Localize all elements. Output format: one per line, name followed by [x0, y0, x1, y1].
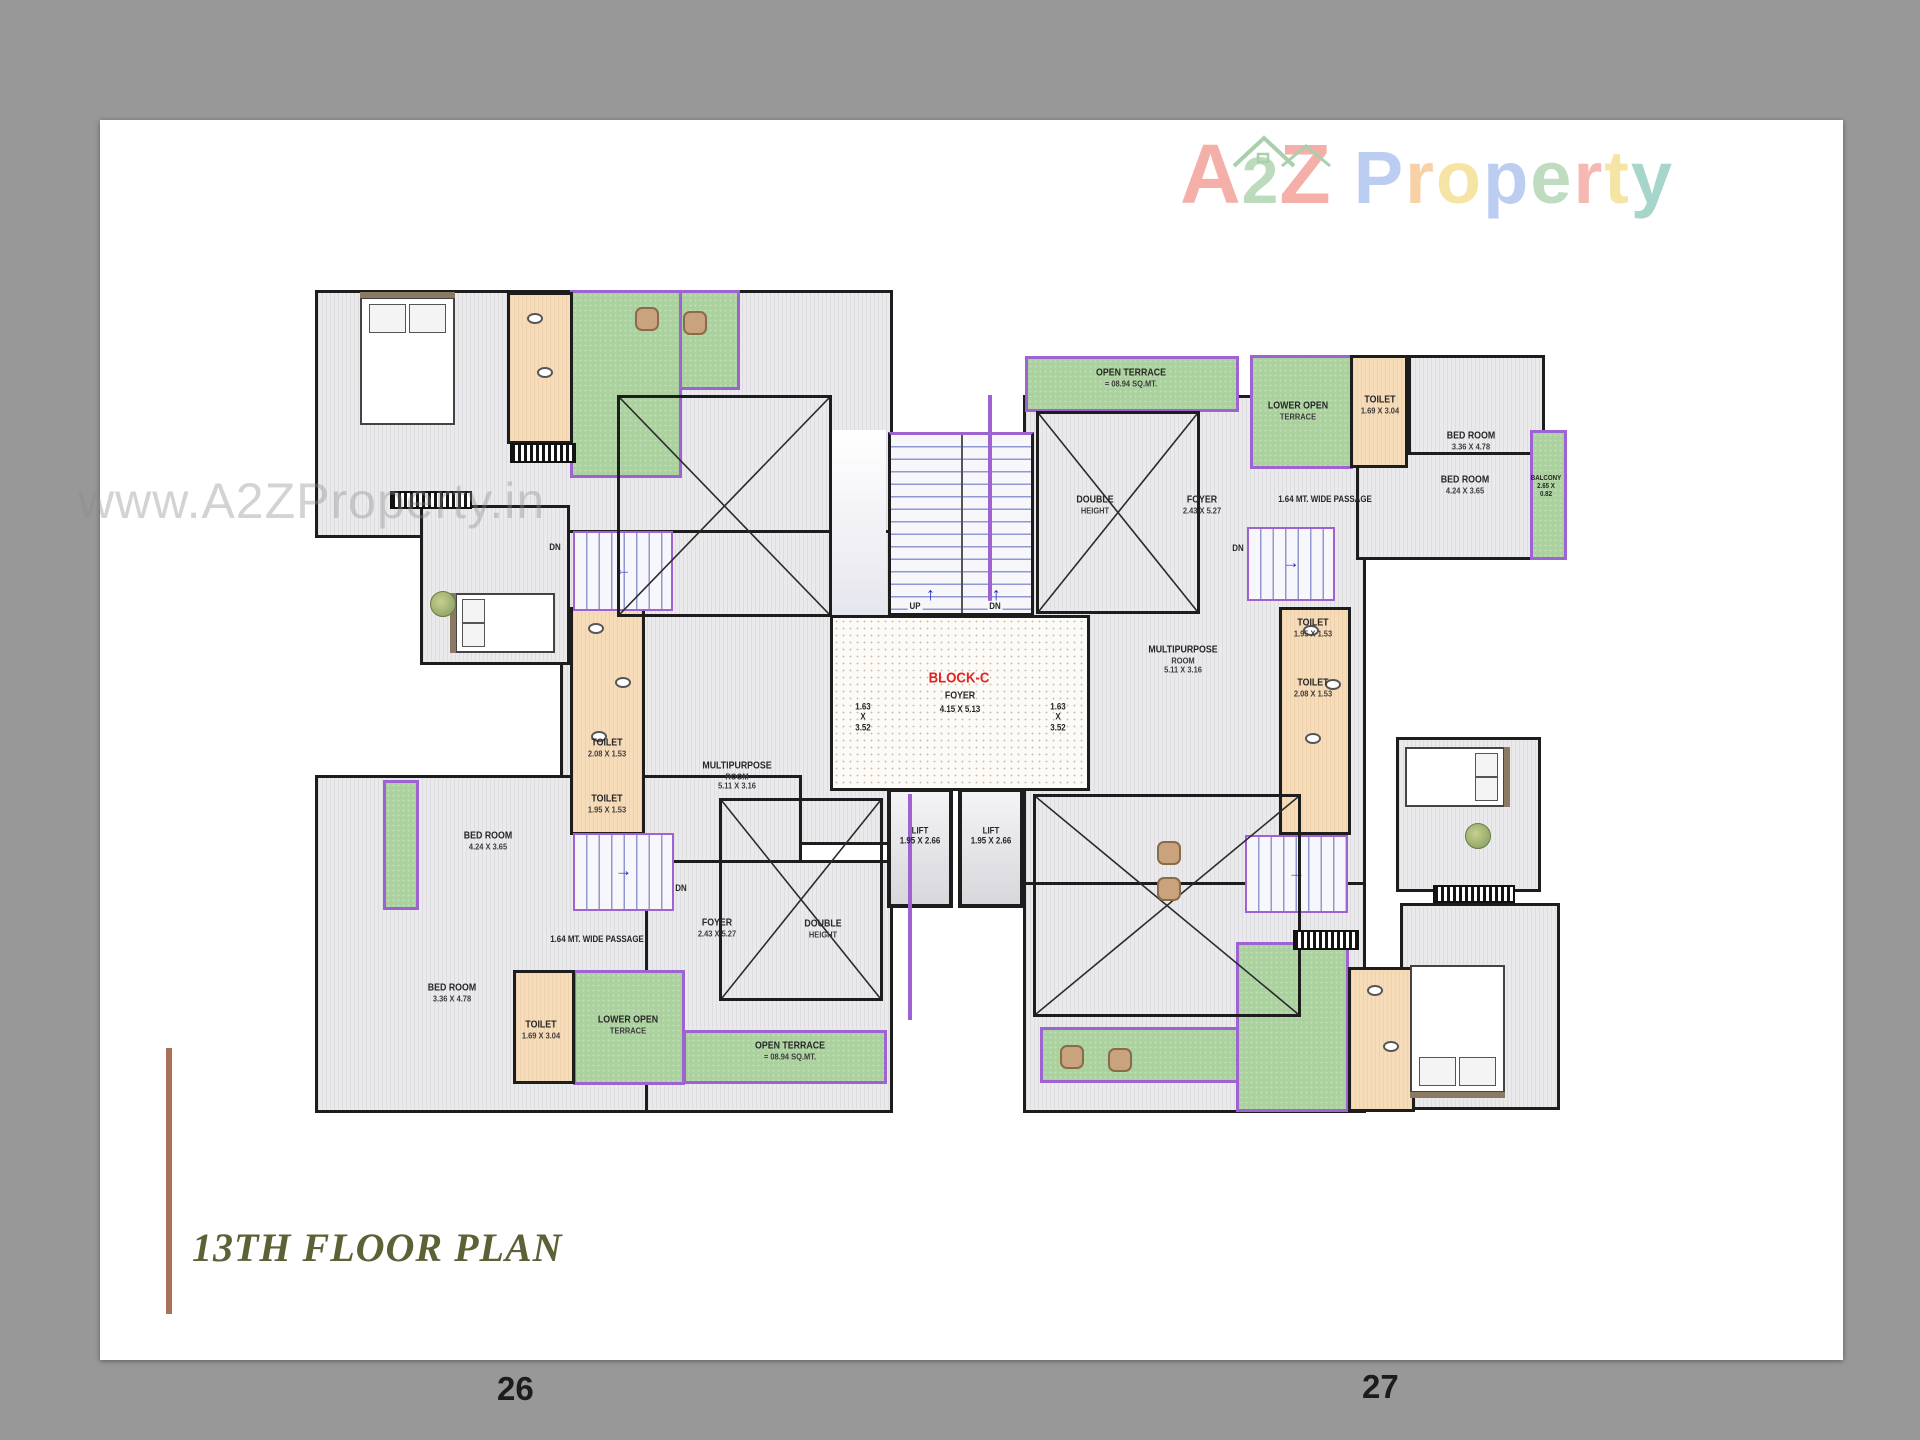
- up-label: UP: [908, 601, 923, 611]
- dim-163-east-label: 1.63X3.52: [1050, 701, 1065, 732]
- lift-1: [887, 788, 953, 908]
- logo-letter: p: [1483, 135, 1530, 220]
- lift-2-label: LIFT1.95 X 2.66: [971, 826, 1012, 847]
- bed-headboard: [360, 292, 455, 298]
- multipurpose-b-label: MULTIPURPOSEROOM5.11 X 3.16: [1148, 644, 1217, 675]
- foyer-c-label-line: 2.43 X 5.27: [698, 929, 736, 939]
- double-height-c-label: DOUBLEHEIGHT: [804, 918, 841, 939]
- dn-core-label-line: DN: [989, 601, 1000, 611]
- wc-east-3: [1305, 733, 1321, 744]
- wc-a-1: [527, 313, 543, 324]
- lift-1-label: LIFT1.95 X 2.66: [900, 826, 941, 847]
- dim-163-east-label-line: 1.63: [1050, 701, 1065, 711]
- bed-pillow: [1419, 1057, 1456, 1086]
- chair-terrace-d-1: [1060, 1045, 1084, 1069]
- bedroom-336-c-label-line: 3.36 X 4.78: [428, 994, 476, 1004]
- bed-unit-d-mid: [1405, 747, 1505, 807]
- dim-163-west-label-line: X: [855, 712, 870, 722]
- logo-letter: r: [1573, 135, 1604, 220]
- dn-c-label: DN: [675, 883, 686, 893]
- passage-c-label-line: 1.64 MT. WIDE PASSAGE: [550, 934, 644, 944]
- a2z-property-logo: A2Z Property: [1180, 126, 1674, 223]
- passage-b-label-line: 1.64 MT. WIDE PASSAGE: [1278, 494, 1372, 504]
- foyer-b-label-line: FOYER: [1183, 494, 1221, 506]
- logo-letter: y: [1631, 135, 1674, 220]
- bed-headboard: [1504, 747, 1510, 807]
- toilet-208-c-label: TOILET2.08 X 1.53: [588, 737, 626, 758]
- bedroom-336-c-label-line: BED ROOM: [428, 982, 476, 994]
- block-c-label: BLOCK-C: [929, 669, 990, 686]
- stairs-b: →: [1247, 527, 1335, 601]
- logo-house-icon: [1230, 126, 1350, 170]
- bedroom-424-b-label-line: 4.24 X 3.65: [1441, 486, 1489, 496]
- multipurpose-b-label-line: 5.11 X 3.16: [1148, 666, 1217, 676]
- stair-direction-arrow: →: [1283, 553, 1300, 573]
- wardrobe-d2: [1433, 885, 1515, 903]
- floor-plan: ↑↑←→→→OPEN TERRACE= 08.94 SQ.MT.LOWER OP…: [305, 285, 1567, 1117]
- up-label-line: UP: [909, 601, 920, 611]
- bedroom-336-b-label-line: BED ROOM: [1447, 430, 1495, 442]
- wc-d-2: [1383, 1041, 1399, 1052]
- toilet-208-c-label-line: 2.08 X 1.53: [588, 749, 626, 759]
- lower-open-terrace-c-label: LOWER OPENTERRACE: [598, 1014, 658, 1035]
- logo-letter: r: [1405, 135, 1436, 220]
- multipurpose-c-label-line: MULTIPURPOSE: [702, 760, 771, 772]
- double-height-b-label-line: HEIGHT: [1076, 506, 1113, 516]
- bed-pillow: [462, 599, 485, 622]
- toilet-169-c-label-line: TOILET: [522, 1019, 560, 1031]
- purple-wall-1: [988, 395, 992, 601]
- lower-open-terrace-b-label: LOWER OPENTERRACE: [1268, 400, 1328, 421]
- dn-a-label: DN: [549, 542, 560, 552]
- chair-terrace-a-2: [683, 311, 707, 335]
- multipurpose-c-label-line: 5.11 X 3.16: [702, 782, 771, 792]
- chair-terrace-d-2: [1108, 1048, 1132, 1072]
- wc-west-2: [615, 677, 631, 688]
- double-height-c-label-line: HEIGHT: [804, 930, 841, 940]
- chair-hall-d-2: [1157, 877, 1181, 901]
- toilet-208-b-label: TOILET2.08 X 1.53: [1294, 677, 1332, 698]
- bed-pillow: [1475, 753, 1498, 776]
- toilet-208-b-label-line: TOILET: [1294, 677, 1332, 689]
- dn-c-label-line: DN: [675, 883, 686, 893]
- toilet-169-b-label-line: 1.69 X 3.04: [1361, 406, 1399, 416]
- block-c-foyer-label: FOYER: [945, 690, 975, 702]
- toilet-195-c-label: TOILET1.95 X 1.53: [588, 793, 626, 814]
- logo-letter: e: [1530, 135, 1573, 220]
- stair-divider: [961, 435, 963, 613]
- chair-terrace-a-1: [635, 307, 659, 331]
- chair-hall-d-1: [1157, 841, 1181, 865]
- logo-letter: t: [1604, 135, 1631, 220]
- bed-pillow: [462, 623, 485, 646]
- plant-a: [430, 591, 456, 617]
- dim-163-east-label-line: X: [1050, 712, 1065, 722]
- multipurpose-c-label: MULTIPURPOSEROOM5.11 X 3.16: [702, 760, 771, 791]
- toilet-169-b-label: TOILET1.69 X 3.04: [1361, 394, 1399, 415]
- stair-up-arrow: ↑: [926, 584, 935, 605]
- open-terrace-b-label: OPEN TERRACE= 08.94 SQ.MT.: [1096, 367, 1166, 388]
- bedroom-424-c-label-line: BED ROOM: [464, 830, 512, 842]
- stairs-c: →: [573, 833, 674, 911]
- toilet-195-b-label: TOILET1.95 X 1.53: [1294, 617, 1332, 638]
- bed-unit-a: [360, 297, 455, 425]
- toilet-169-b-label-line: TOILET: [1361, 394, 1399, 406]
- wardrobe-d1: [1293, 930, 1359, 950]
- lift-2-label-line: LIFT: [971, 826, 1012, 836]
- foyer-c-label: FOYER2.43 X 5.27: [698, 917, 736, 938]
- double-height-b-label: DOUBLEHEIGHT: [1076, 494, 1113, 515]
- double-height-d: [1033, 794, 1301, 1017]
- stair-landing: [832, 430, 886, 614]
- block-c-dim-label: 4.15 X 5.13: [940, 704, 981, 714]
- bed-unit-d: [1410, 965, 1505, 1093]
- dn-b-label: DN: [1232, 543, 1243, 553]
- bedroom-336-b-label: BED ROOM3.36 X 4.78: [1447, 430, 1495, 451]
- toilet-169-c-label: TOILET1.69 X 3.04: [522, 1019, 560, 1040]
- dn-a-label-line: DN: [549, 542, 560, 552]
- bed-pillow: [1459, 1057, 1496, 1086]
- dn-b-label-line: DN: [1232, 543, 1243, 553]
- open-terrace-c-label-line: = 08.94 SQ.MT.: [755, 1052, 825, 1062]
- page-title: 13TH FLOOR PLAN: [192, 1224, 563, 1271]
- bedroom-424-c-label-line: 4.24 X 3.65: [464, 842, 512, 852]
- bedroom-424-c-label: BED ROOM4.24 X 3.65: [464, 830, 512, 851]
- central-staircase: ↑↑: [888, 432, 1034, 616]
- bed-pillow: [1475, 777, 1498, 800]
- passage-b-label: 1.64 MT. WIDE PASSAGE: [1278, 494, 1372, 504]
- bed-unit-a-mid: [455, 593, 555, 653]
- bedroom-336-b-label-line: 3.36 X 4.78: [1447, 442, 1495, 452]
- foyer-b-label-line: 2.43 X 5.27: [1183, 506, 1221, 516]
- dn-core-label: DN: [988, 601, 1003, 611]
- bed-pillow: [409, 304, 446, 333]
- open-terrace-b-label-line: OPEN TERRACE: [1096, 367, 1166, 379]
- dim-163-west-label-line: 1.63: [855, 701, 870, 711]
- block-c-foyer-label-line: FOYER: [945, 690, 975, 702]
- title-accent-line: [166, 1048, 172, 1314]
- balcony-c: [383, 780, 419, 910]
- toilet-169-c-label-line: 1.69 X 3.04: [522, 1031, 560, 1041]
- double-height-c-label-line: DOUBLE: [804, 918, 841, 930]
- toilet-208-b-label-line: 2.08 X 1.53: [1294, 689, 1332, 699]
- lift-1-label-line: LIFT: [900, 826, 941, 836]
- toilet-208-c-label-line: TOILET: [588, 737, 626, 749]
- logo-letter: P: [1354, 135, 1405, 220]
- lift-2: [958, 788, 1024, 908]
- dim-163-west-label: 1.63X3.52: [855, 701, 870, 732]
- lower-open-terrace-c-label-line: TERRACE: [598, 1026, 658, 1036]
- dim-163-west-label-line: 3.52: [855, 722, 870, 732]
- stair-direction-arrow: →: [615, 861, 632, 881]
- wardrobe-a2: [510, 443, 576, 463]
- lower-open-terrace-c-label-line: LOWER OPEN: [598, 1014, 658, 1026]
- balcony-b-label-line: BALCONY: [1531, 475, 1561, 483]
- double-height-b-label-line: DOUBLE: [1076, 494, 1113, 506]
- page-number-left: 26: [497, 1370, 534, 1408]
- block-c-dim-label-line: 4.15 X 5.13: [940, 704, 981, 714]
- lower-open-terrace-b-label-line: LOWER OPEN: [1268, 400, 1328, 412]
- bedroom-336-c-label: BED ROOM3.36 X 4.78: [428, 982, 476, 1003]
- wc-d-1: [1367, 985, 1383, 996]
- bed-headboard: [1410, 1092, 1505, 1098]
- wc-west-1: [588, 623, 604, 634]
- logo-word-property: Property: [1354, 135, 1674, 220]
- logo-letter: o: [1436, 135, 1483, 220]
- balcony-b-label-line: 0.82: [1531, 491, 1561, 499]
- foyer-b-label: FOYER2.43 X 5.27: [1183, 494, 1221, 515]
- wardrobe-a1: [390, 491, 472, 509]
- lower-open-terrace-b-label-line: TERRACE: [1268, 412, 1328, 422]
- toilet-195-c-label-line: 1.95 X 1.53: [588, 805, 626, 815]
- toilet-195-c-label-line: TOILET: [588, 793, 626, 805]
- bedroom-424-b-label: BED ROOM4.24 X 3.65: [1441, 474, 1489, 495]
- double-height-c: [719, 798, 883, 1001]
- balcony-b-label-line: 2.65 X: [1531, 483, 1561, 491]
- open-terrace-c-label-line: OPEN TERRACE: [755, 1040, 825, 1052]
- open-terrace-b-label-line: = 08.94 SQ.MT.: [1096, 379, 1166, 389]
- toilet-195-b-label-line: TOILET: [1294, 617, 1332, 629]
- brochure-page: A2Z Property www.A2ZProperty.in ↑↑←→→→OP…: [100, 120, 1843, 1360]
- bed-pillow: [369, 304, 406, 333]
- foyer-c-label-line: FOYER: [698, 917, 736, 929]
- wc-a-2: [537, 367, 553, 378]
- block-c-label-line: BLOCK-C: [929, 669, 990, 686]
- double-height-b: [1036, 411, 1200, 614]
- bedroom-424-b-label-line: BED ROOM: [1441, 474, 1489, 486]
- page-number-right: 27: [1362, 1368, 1399, 1406]
- open-terrace-c-label: OPEN TERRACE= 08.94 SQ.MT.: [755, 1040, 825, 1061]
- lift-2-label-line: 1.95 X 2.66: [971, 836, 1012, 846]
- multipurpose-b-label-line: MULTIPURPOSE: [1148, 644, 1217, 656]
- balcony-b-label: BALCONY2.65 X0.82: [1531, 475, 1561, 499]
- passage-c-label: 1.64 MT. WIDE PASSAGE: [550, 934, 644, 944]
- plant-d: [1465, 823, 1491, 849]
- lift-1-label-line: 1.95 X 2.66: [900, 836, 941, 846]
- dim-163-east-label-line: 3.52: [1050, 722, 1065, 732]
- toilet-195-b-label-line: 1.95 X 1.53: [1294, 629, 1332, 639]
- double-height-a: [617, 395, 832, 617]
